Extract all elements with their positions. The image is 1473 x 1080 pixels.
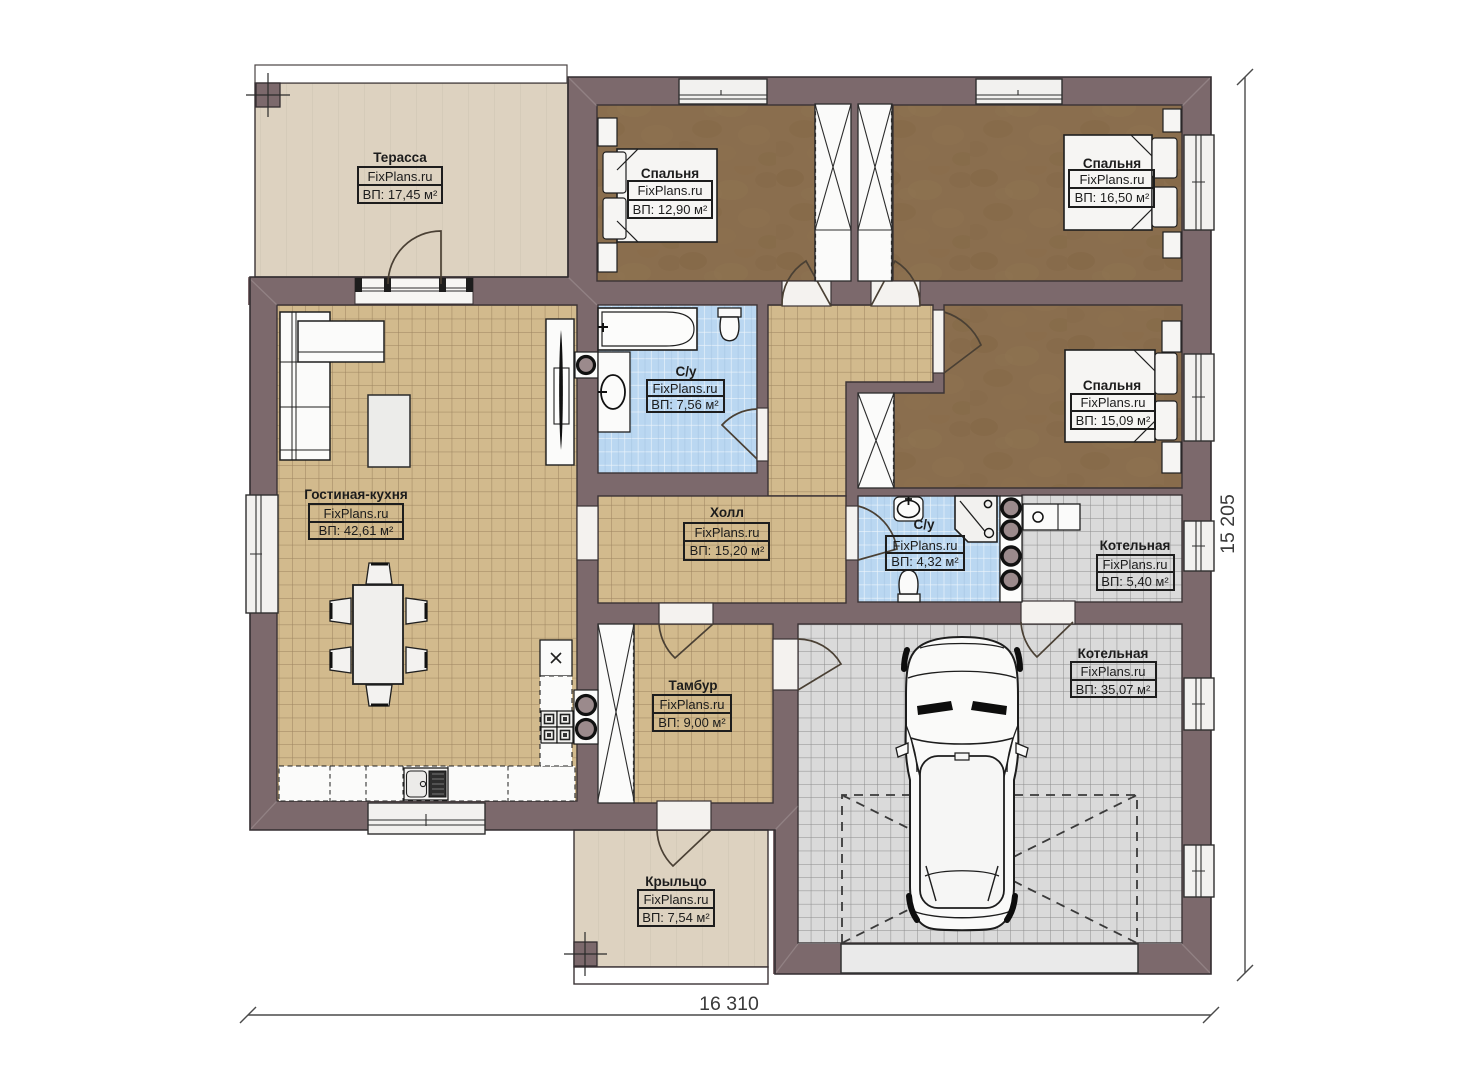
svg-text:FixPlans.ru: FixPlans.ru (643, 892, 708, 907)
svg-text:ВП: 7,54 м²: ВП: 7,54 м² (642, 910, 710, 925)
svg-text:ВП: 15,20 м²: ВП: 15,20 м² (690, 543, 765, 558)
svg-text:FixPlans.ru: FixPlans.ru (892, 538, 957, 553)
svg-text:С/у: С/у (913, 517, 935, 532)
svg-text:FixPlans.ru: FixPlans.ru (367, 169, 432, 184)
svg-text:FixPlans.ru: FixPlans.ru (659, 697, 724, 712)
svg-text:Холл: Холл (710, 505, 744, 520)
svg-text:Спальня: Спальня (1083, 156, 1141, 171)
svg-text:FixPlans.ru: FixPlans.ru (694, 525, 759, 540)
svg-text:FixPlans.ru: FixPlans.ru (323, 506, 388, 521)
svg-text:FixPlans.ru: FixPlans.ru (1079, 172, 1144, 187)
svg-text:Спальня: Спальня (641, 166, 699, 181)
svg-text:ВП: 9,00 м²: ВП: 9,00 м² (658, 715, 726, 730)
svg-text:FixPlans.ru: FixPlans.ru (1080, 664, 1145, 679)
svg-text:ВП: 16,50 м²: ВП: 16,50 м² (1075, 190, 1150, 205)
svg-text:ВП: 17,45 м²: ВП: 17,45 м² (363, 187, 438, 202)
svg-text:ВП: 12,90 м²: ВП: 12,90 м² (633, 202, 708, 217)
svg-text:Терасса: Терасса (373, 150, 427, 165)
svg-text:FixPlans.ru: FixPlans.ru (1080, 395, 1145, 410)
svg-text:ВП: 35,07 м²: ВП: 35,07 м² (1076, 682, 1151, 697)
svg-text:ВП: 42,61 м²: ВП: 42,61 м² (319, 523, 394, 538)
svg-text:Крыльцо: Крыльцо (645, 874, 706, 889)
svg-text:Тамбур: Тамбур (669, 678, 718, 693)
svg-text:Котельная: Котельная (1078, 646, 1149, 661)
svg-text:ВП: 15,09 м²: ВП: 15,09 м² (1076, 413, 1151, 428)
svg-text:15 205: 15 205 (1217, 494, 1239, 554)
svg-text:FixPlans.ru: FixPlans.ru (1102, 557, 1167, 572)
svg-text:ВП: 5,40 м²: ВП: 5,40 м² (1101, 574, 1169, 589)
svg-text:Гостиная-кухня: Гостиная-кухня (304, 487, 407, 502)
svg-text:Спальня: Спальня (1083, 378, 1141, 393)
svg-text:Котельная: Котельная (1100, 538, 1171, 553)
svg-text:16 310: 16 310 (699, 993, 759, 1015)
svg-text:ВП: 7,56 м²: ВП: 7,56 м² (651, 397, 719, 412)
svg-text:FixPlans.ru: FixPlans.ru (637, 183, 702, 198)
svg-text:С/у: С/у (675, 364, 697, 379)
svg-text:ВП: 4,32 м²: ВП: 4,32 м² (891, 554, 959, 569)
svg-text:FixPlans.ru: FixPlans.ru (652, 381, 717, 396)
